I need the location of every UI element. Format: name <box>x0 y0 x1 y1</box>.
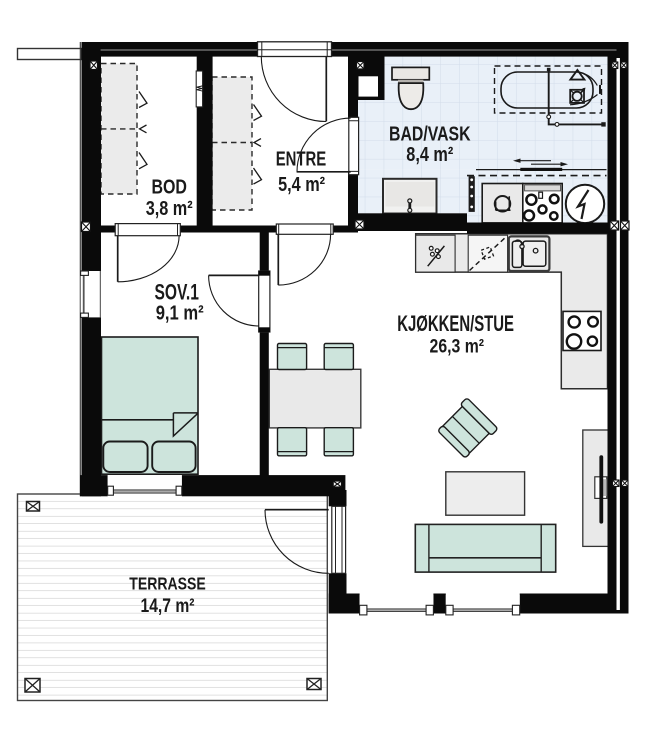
svg-text:3,8 m²: 3,8 m² <box>146 198 193 220</box>
svg-text:BAD/VASK: BAD/VASK <box>389 123 471 145</box>
svg-text:8,4 m²: 8,4 m² <box>406 144 453 166</box>
svg-text:9,1 m²: 9,1 m² <box>156 302 204 325</box>
svg-text:14,7 m²: 14,7 m² <box>141 596 195 617</box>
svg-text:ENTRE: ENTRE <box>276 149 327 171</box>
svg-text:BOD: BOD <box>151 177 187 199</box>
svg-text:5,4 m²: 5,4 m² <box>278 174 325 196</box>
svg-text:26,3 m²: 26,3 m² <box>430 335 485 357</box>
svg-text:KJØKKEN/STUE: KJØKKEN/STUE <box>397 311 514 336</box>
svg-text:TERRASSE: TERRASSE <box>129 573 206 593</box>
